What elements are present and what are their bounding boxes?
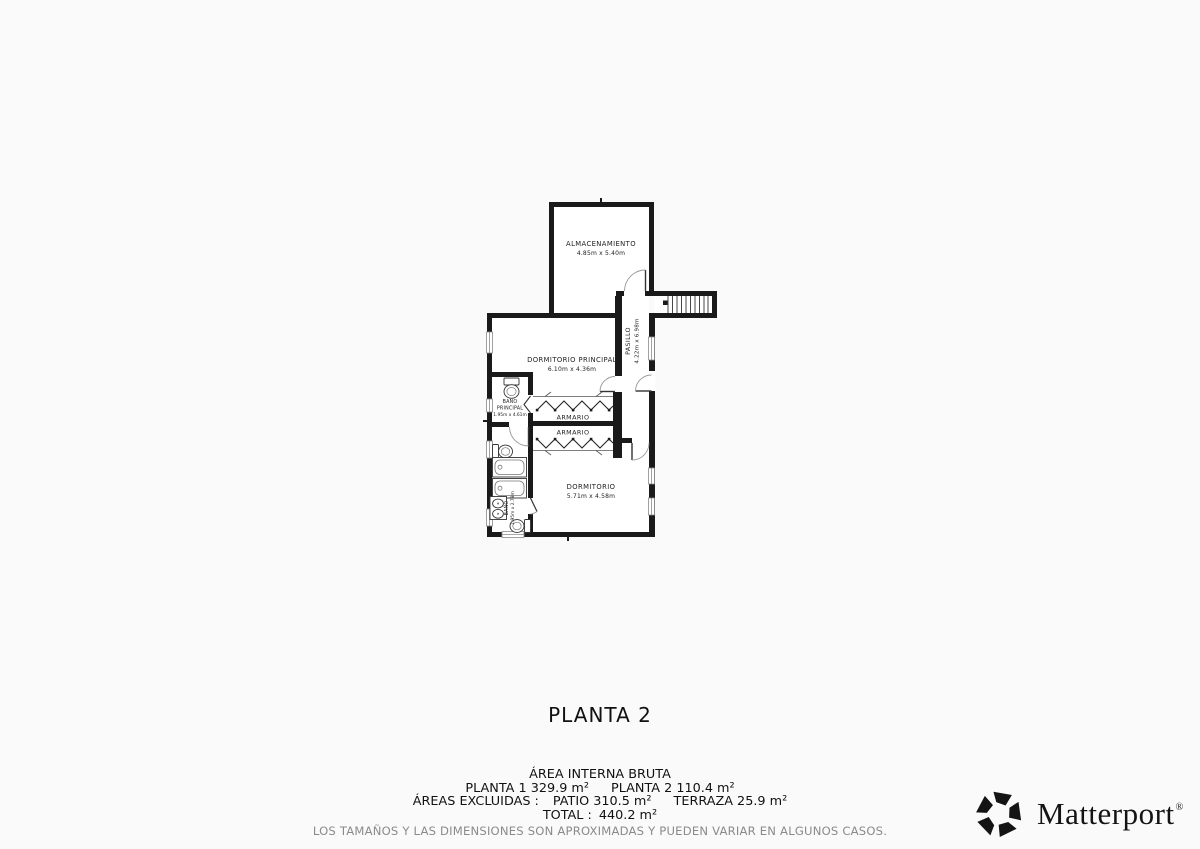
matterport-name: Matterport: [1037, 796, 1175, 831]
label-pasillo: PASILLO: [625, 327, 632, 355]
bathtub-upper: [493, 458, 527, 478]
label-armario-inferior: ARMARIO: [557, 429, 590, 437]
stairs-marker: [663, 301, 668, 306]
dims-dormitorio-principal: 6.10m x 4.36m: [548, 366, 596, 373]
label-dormitorio-principal: DORMITORIO PRINCIPAL: [527, 356, 617, 364]
summary-total-value: 440.2 m²: [599, 808, 657, 823]
registered-mark: ®: [1176, 802, 1184, 813]
matterport-logo: Matterport®: [974, 789, 1184, 839]
floor-title: PLANTA 2: [0, 703, 1200, 727]
label-armario-superior: ARMARIO: [557, 414, 590, 422]
summary-total-label: TOTAL :: [543, 808, 592, 823]
toilet-bano-principal: [504, 378, 519, 398]
dims-pasillo: 4.22m x 6.98m: [635, 318, 641, 363]
floorplan-page: { "colors": { "background": "#fafafa", "…: [0, 0, 1200, 849]
label-dormitorio: DORMITORIO: [567, 483, 616, 491]
matterport-wordmark: Matterport®: [1037, 796, 1184, 832]
dims-almacenamiento: 4.85m x 5.40m: [577, 250, 625, 257]
matterport-icon: [974, 789, 1024, 839]
toilet-bath-hall: [493, 445, 513, 459]
dims-dormitorio: 5.71m x 4.58m: [567, 493, 615, 500]
label-bano-principal-line2: PRINCIPAL: [497, 406, 523, 412]
label-almacenamiento: ALMACENAMIENTO: [566, 240, 636, 248]
dims-bano-principal: 1.95m x 4.61m: [493, 412, 527, 418]
bathtub-lower: [493, 479, 527, 499]
summary-excluidas-label: ÁREAS EXCLUIDAS :: [413, 794, 539, 809]
label-bano: BAÑO: [503, 501, 510, 516]
dims-bano: 1.95m x 2.78m: [510, 491, 516, 525]
label-bano-principal-line1: BAÑO: [503, 398, 518, 405]
summary-terraza: TERRAZA 25.9 m²: [674, 794, 788, 809]
summary-heading: ÁREA INTERNA BRUTA: [0, 768, 1200, 782]
